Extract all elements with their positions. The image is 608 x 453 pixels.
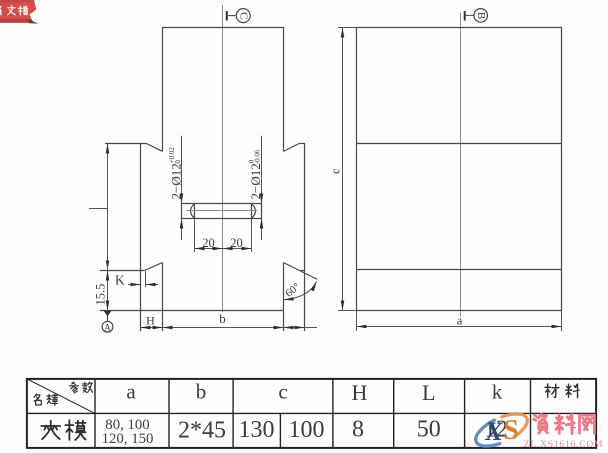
svg-text:C: C bbox=[238, 12, 250, 19]
svg-text:130: 130 bbox=[239, 417, 275, 443]
svg-text:b: b bbox=[196, 380, 207, 404]
svg-text:8: 8 bbox=[352, 417, 364, 443]
svg-text:50: 50 bbox=[417, 417, 441, 443]
svg-text:a: a bbox=[126, 380, 136, 404]
svg-text:2*45: 2*45 bbox=[178, 418, 226, 444]
svg-text:S: S bbox=[503, 415, 519, 446]
svg-text:c: c bbox=[329, 168, 343, 174]
svg-text:20: 20 bbox=[230, 236, 243, 250]
svg-text:c: c bbox=[278, 380, 287, 404]
svg-text:H: H bbox=[352, 380, 368, 405]
svg-text:100: 100 bbox=[289, 417, 325, 443]
svg-text:B: B bbox=[475, 12, 487, 19]
svg-text:L: L bbox=[422, 380, 435, 405]
svg-text:b: b bbox=[219, 311, 226, 326]
svg-text:a: a bbox=[457, 314, 463, 328]
svg-text:K: K bbox=[115, 273, 125, 288]
svg-text:X: X bbox=[484, 417, 503, 446]
svg-text:H: H bbox=[146, 314, 155, 328]
svg-text:15.5: 15.5 bbox=[93, 284, 107, 306]
svg-text:A: A bbox=[104, 322, 111, 332]
svg-text:k: k bbox=[492, 382, 503, 404]
svg-text:20: 20 bbox=[202, 236, 215, 250]
svg-text:ZL.XS1616.COM: ZL.XS1616.COM bbox=[524, 440, 604, 450]
svg-text:120, 150: 120, 150 bbox=[102, 431, 154, 447]
